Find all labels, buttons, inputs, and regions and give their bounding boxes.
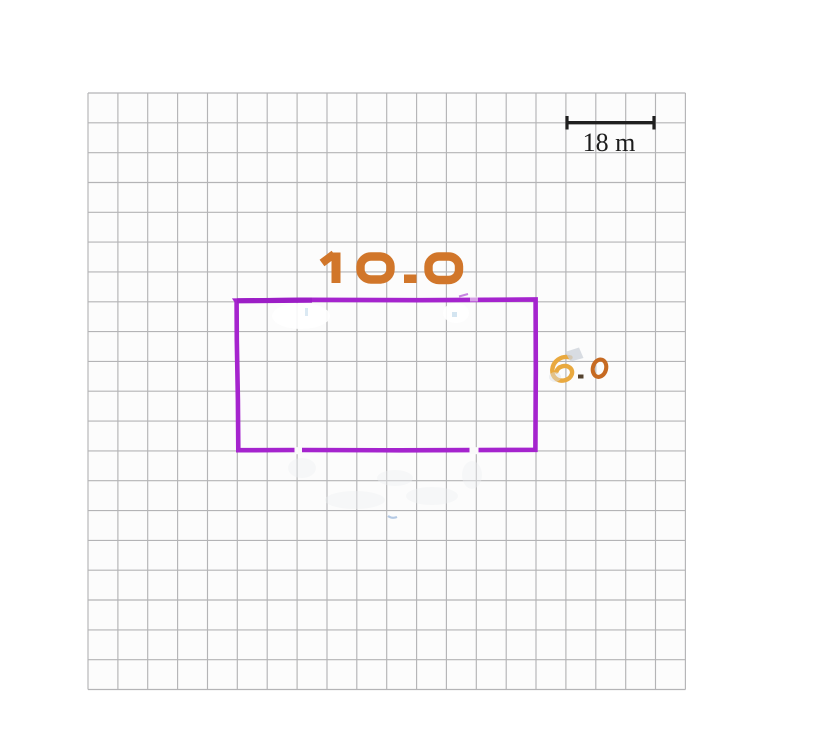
svg-text:18 m: 18 m: [583, 128, 636, 157]
